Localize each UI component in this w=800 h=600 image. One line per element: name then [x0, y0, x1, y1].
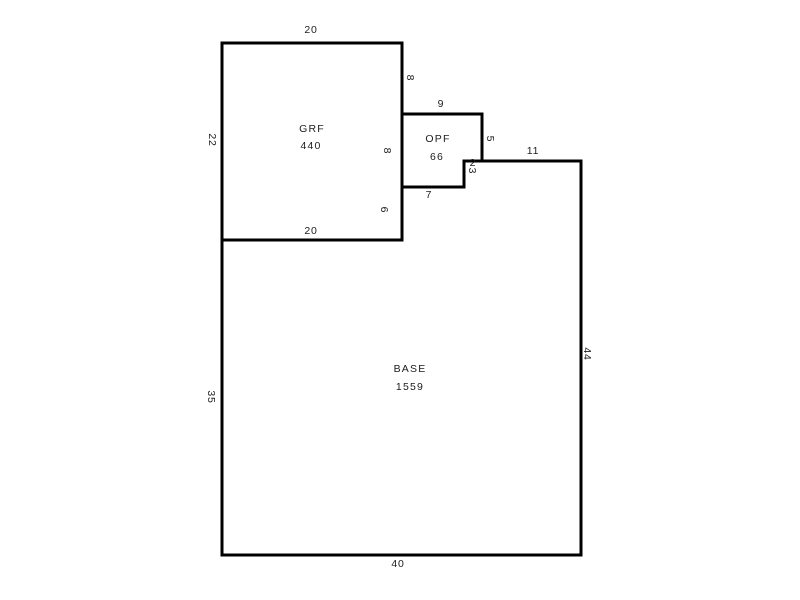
area-name-base: BASE	[394, 363, 427, 375]
dimension-label-grf-bottom: 20	[304, 225, 317, 237]
dimension-label-base-right: 44	[581, 347, 593, 360]
area-value-base: 1559	[396, 381, 424, 393]
dimension-label-grf-right-upper: 8	[404, 75, 416, 82]
dimension-label-base-left: 35	[205, 390, 217, 403]
dimension-label-base-bottom: 40	[391, 558, 404, 570]
area-value-opf: 66	[430, 151, 444, 163]
dimension-label-opf-notch-vertical: 3	[466, 168, 478, 175]
dimension-label-grf-left: 22	[206, 133, 218, 146]
dimension-label-opf-right: 5	[484, 136, 496, 143]
dimension-label-base-top-right: 11	[527, 145, 540, 157]
dimension-label-opf-top: 9	[438, 98, 445, 110]
area-name-opf: OPF	[425, 133, 450, 145]
area-value-grf: 440	[300, 140, 321, 152]
dimension-label-grf-right-middle: 8	[381, 148, 393, 155]
area-name-grf: GRF	[299, 123, 325, 135]
floor-plan-sketch: GRF440OPF66BASE1559202289851123762035444…	[0, 0, 800, 600]
dimension-label-grf-top: 20	[304, 24, 317, 36]
area-outline-base	[222, 161, 581, 555]
floor-plan-page: GRF440OPF66BASE1559202289851123762035444…	[0, 0, 800, 600]
dimension-label-grf-right-lower: 6	[378, 207, 390, 214]
dimension-label-opf-bottom: 7	[426, 189, 433, 201]
